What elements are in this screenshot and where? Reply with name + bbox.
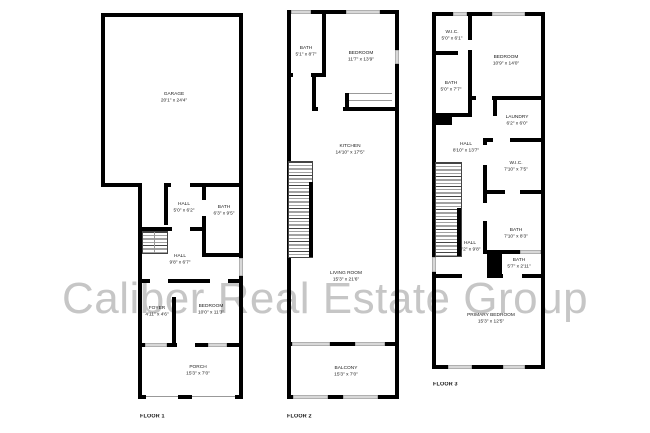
wall [343, 107, 399, 111]
wall [483, 138, 487, 145]
wall [378, 395, 399, 399]
wall [483, 165, 487, 203]
entry-step [178, 395, 192, 399]
wall [101, 13, 105, 187]
room-dims: 6'2" x 6'0" [506, 121, 529, 127]
wall [468, 50, 472, 115]
room-dims: 7'10" x 7'5" [504, 167, 528, 173]
window [492, 12, 525, 16]
wall [228, 279, 243, 283]
window [453, 12, 467, 16]
room-dims: 14'10" x 17'5" [336, 150, 365, 156]
window [145, 343, 167, 347]
wall [190, 227, 206, 231]
floor-2-label: FLOOR 2 [287, 414, 312, 419]
floor-3-label: FLOOR 3 [433, 382, 458, 387]
wall [190, 183, 243, 187]
wall [312, 107, 318, 111]
stair-divider [154, 232, 155, 253]
wall [311, 10, 346, 14]
balcony-rail [343, 395, 378, 399]
wall [168, 279, 210, 283]
wall [227, 343, 243, 347]
window [291, 10, 311, 14]
wall [487, 274, 503, 278]
room-name: PORCH [186, 365, 210, 371]
room-label-foyer: FOYER 4'11" x 4'6" [145, 306, 168, 318]
wall [432, 12, 453, 16]
room-label-bedroom-f2: BEDROOM 11'7" x 13'9" [348, 51, 374, 63]
room-name: BEDROOM [198, 304, 224, 310]
room-dims: 20'1" x 24'4" [161, 98, 187, 104]
window [292, 342, 330, 346]
wall [468, 96, 476, 100]
room-label-bedroom-f1: BEDROOM 10'0" x 11'3" [198, 304, 224, 316]
staircase [143, 232, 167, 253]
room-label-hall-upper: HALL 5'0" x 6'2" [174, 202, 195, 214]
wall [483, 221, 487, 250]
wall [202, 216, 206, 257]
room-label-kitchen: KITCHEN 14'10" x 17'5" [336, 144, 365, 156]
wall [493, 96, 497, 116]
room-dims: 4'2" x 9'8" [460, 247, 481, 253]
room-label-porch: PORCH 15'3" x 7'0" [186, 365, 210, 377]
room-label-wic2-f3: W.I.C. 7'10" x 7'5" [504, 161, 528, 173]
wall [525, 365, 545, 369]
window [355, 342, 385, 346]
wall [345, 93, 349, 111]
room-dims: 5'0" x 7'7" [441, 87, 462, 93]
room-label-hall1-f3: HALL 8'10" x 13'7" [453, 142, 479, 154]
room-label-bath-f2: BATH 5'1" x 8'7" [296, 46, 317, 58]
closet-line [349, 100, 392, 101]
wall [385, 342, 399, 346]
room-dims: 9'8" x 6'7" [170, 260, 191, 266]
wall [235, 395, 243, 399]
floor-1-label: FLOOR 1 [140, 414, 165, 419]
window [448, 365, 472, 369]
room-dims: 8'10" x 13'7" [453, 148, 479, 154]
room-name: LIVING ROOM [330, 271, 362, 277]
wall [101, 183, 142, 187]
room-label-laundry: LAUNDRY 6'2" x 6'0" [506, 115, 529, 127]
room-label-bath-f1: BATH 6'3" x 9'5" [214, 205, 235, 217]
room-label-balcony: BALCONY 15'3" x 7'0" [334, 366, 358, 378]
window [208, 343, 227, 347]
wall [395, 10, 399, 399]
room-name: BALCONY [334, 366, 358, 372]
room-dims: 5'1" x 8'7" [296, 52, 317, 58]
wall [202, 187, 206, 200]
wall [195, 343, 208, 347]
room-dims: 5'0" x 6'1" [442, 36, 463, 42]
room-label-hall2-f3: HALL 4'2" x 9'8" [460, 241, 481, 253]
room-name: PRIMARY BEDROOM [467, 313, 515, 319]
room-dims: 11'7" x 13'9" [348, 57, 374, 63]
wall [164, 183, 168, 225]
floor-plan-canvas: GARAGE 20'1" x 24'4" HALL 5'0" x 6'2" BA… [0, 0, 650, 433]
room-label-garage: GARAGE 20'1" x 24'4" [161, 92, 187, 104]
closet-line [349, 93, 392, 94]
room-dims: 15'3" x 7'0" [186, 371, 210, 377]
room-name: LAUNDRY [506, 115, 529, 121]
wall [510, 138, 541, 142]
wall [239, 13, 243, 399]
wall [492, 96, 541, 100]
room-name: KITCHEN [336, 144, 365, 150]
room-dims: 7'10" x 8'3" [504, 234, 528, 240]
wall [432, 365, 448, 369]
room-name: BEDROOM [493, 55, 519, 61]
wall [202, 253, 243, 257]
room-label-hall-lower: HALL 9'8" x 6'7" [170, 254, 191, 266]
wall [483, 190, 505, 194]
wall [436, 51, 458, 55]
wall [167, 343, 177, 347]
wall [525, 12, 545, 16]
wall [138, 279, 150, 283]
room-label-primary-bedroom: PRIMARY BEDROOM 15'3" x 12'5" [467, 313, 515, 325]
room-label-living-room: LIVING ROOM 15'3" x 21'6" [330, 271, 362, 283]
wall [322, 14, 326, 77]
window [346, 10, 380, 14]
room-label-bath2-f3: BATH 7'10" x 8'3" [504, 228, 528, 240]
wall [520, 190, 541, 194]
wall [330, 342, 355, 346]
room-dims: 10'0" x 11'3" [198, 310, 224, 316]
room-dims: 15'3" x 12'5" [467, 319, 515, 325]
wall [468, 12, 472, 40]
window [503, 365, 525, 369]
room-dims: 4'11" x 4'6" [145, 312, 168, 318]
wall [138, 395, 146, 399]
room-dims: 15'3" x 7'0" [334, 372, 358, 378]
room-name: BEDROOM [348, 51, 374, 57]
balcony-rail [293, 395, 328, 399]
wall [312, 77, 316, 111]
room-label-wic1-f3: W.I.C. 5'0" x 6'1" [442, 30, 463, 42]
room-dims: 5'0" x 6'2" [174, 208, 195, 214]
room-label-bath1-f3: BATH 5'0" x 7'7" [441, 81, 462, 93]
wall [436, 274, 462, 278]
window [432, 257, 436, 272]
room-label-bath3-f3: BATH 5'7" x 2'11" [507, 258, 530, 270]
wall [172, 297, 176, 347]
wall [138, 343, 145, 347]
window [520, 250, 541, 254]
wall [101, 13, 243, 17]
window [239, 258, 243, 276]
wall [380, 10, 399, 14]
wall [138, 183, 142, 399]
room-label-bedroom-f3: BEDROOM 10'9" x 14'0" [493, 55, 519, 67]
wall [287, 73, 293, 77]
wall [142, 227, 172, 231]
room-dims: 10'9" x 14'0" [493, 61, 519, 67]
wall [522, 274, 541, 278]
room-dims: 15'3" x 21'6" [330, 277, 362, 283]
room-dims: 6'3" x 9'5" [214, 211, 235, 217]
room-dims: 5'7" x 2'11" [507, 264, 530, 270]
window [395, 50, 399, 64]
wall [541, 12, 545, 369]
chase-block [436, 113, 452, 125]
wall [472, 365, 503, 369]
wall [309, 182, 313, 257]
wall [328, 395, 343, 399]
room-name: FOYER [145, 306, 168, 312]
room-name: GARAGE [161, 92, 187, 98]
